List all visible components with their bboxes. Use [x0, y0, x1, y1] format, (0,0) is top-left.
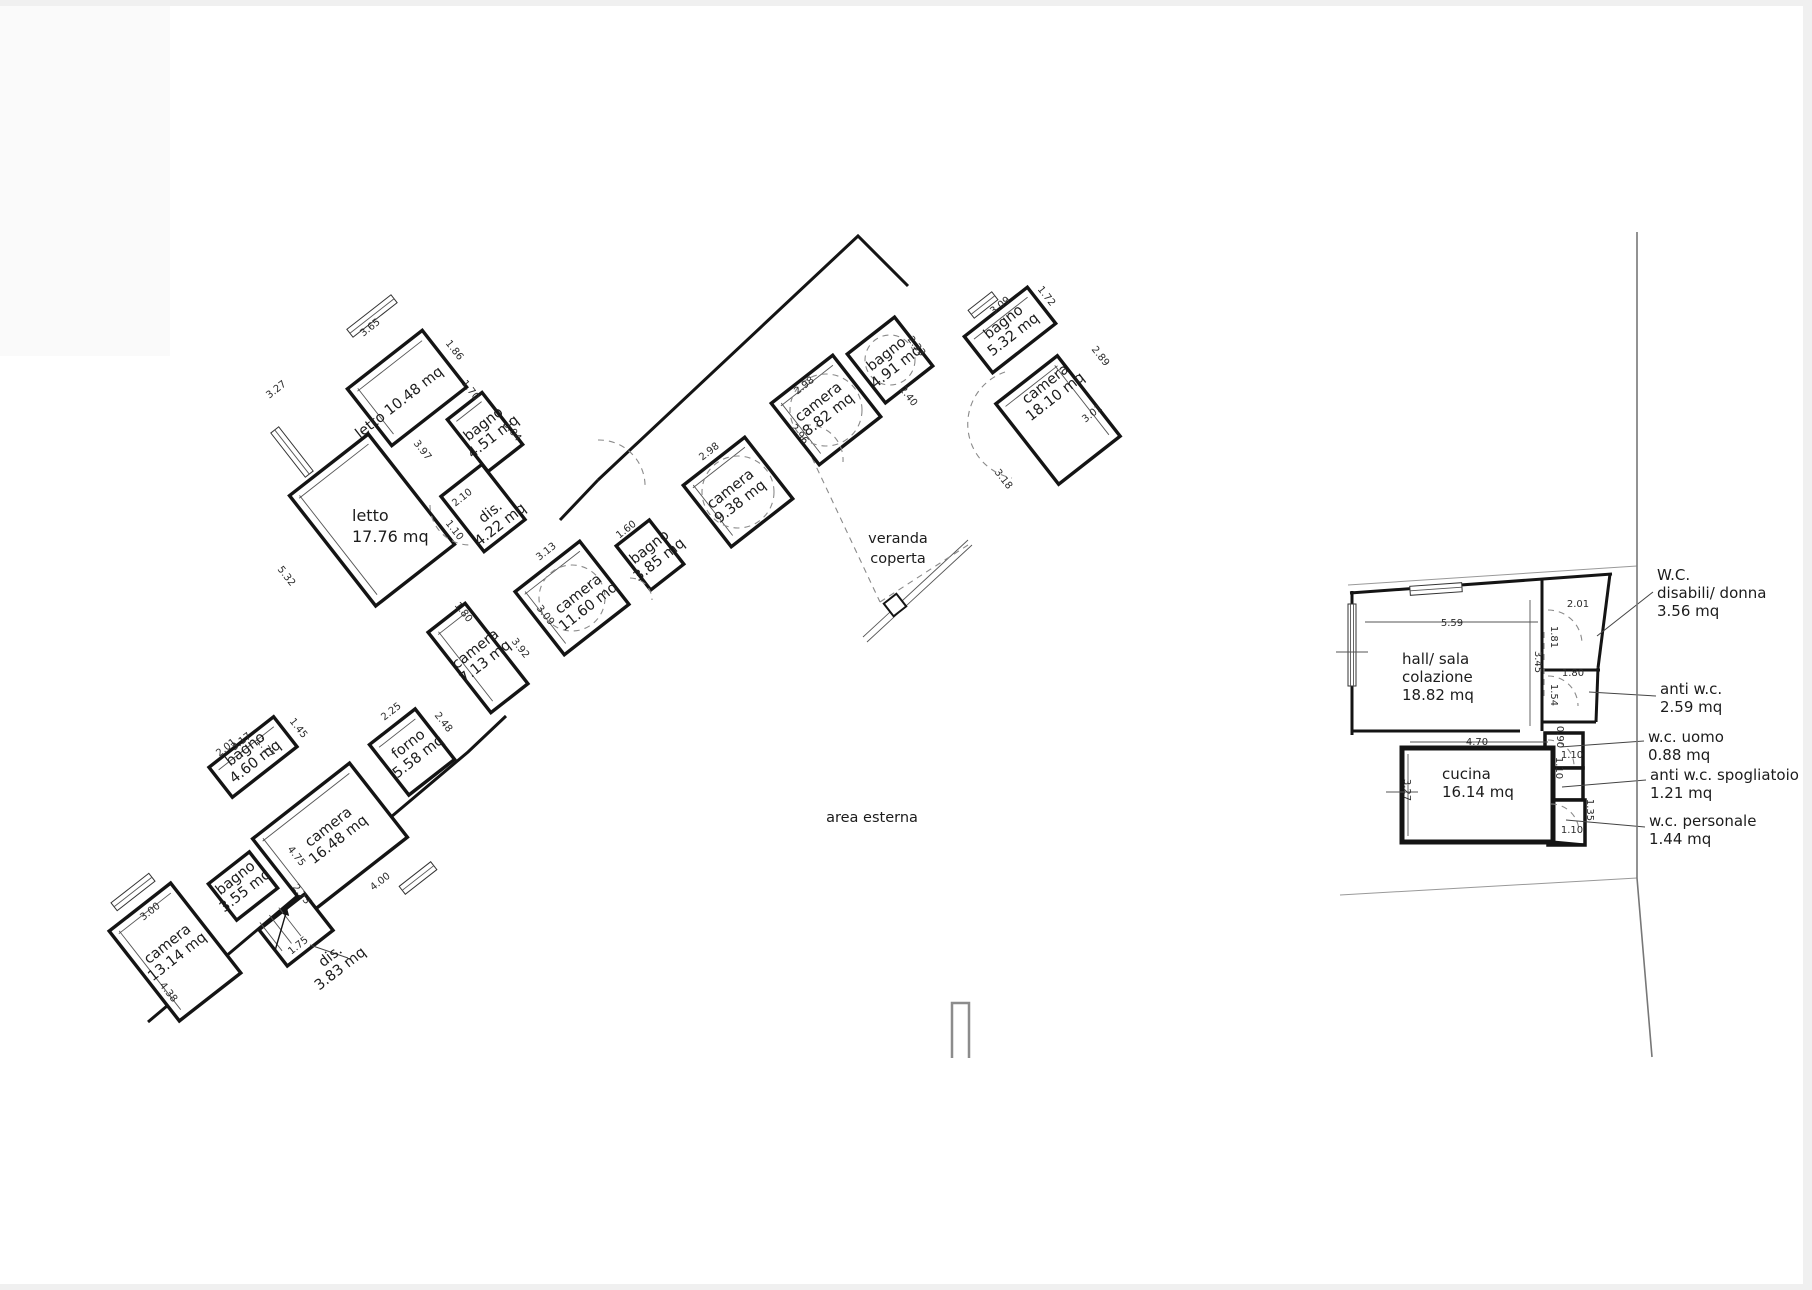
anno-anti-wc-spogliatoio-line2: 1.21 mq — [1650, 784, 1712, 802]
label-area-esterna: area esterna — [826, 810, 918, 826]
leader-anti-wc — [1589, 692, 1656, 696]
dim-40: 1.80 — [1562, 668, 1584, 679]
window-letto-1776 — [271, 427, 313, 477]
label-letto-1776: letto — [352, 506, 389, 525]
anno-wc-disabili-line3: 3.56 mq — [1657, 602, 1719, 620]
dim-46: 1.35 — [1584, 799, 1595, 821]
window-hall-top — [1410, 583, 1463, 596]
site-marker — [952, 1003, 969, 1058]
anno-wc-uomo-line2: 0.88 mq — [1648, 746, 1710, 764]
wall-anti-wc-right — [1596, 668, 1598, 722]
window-camera-1648 — [399, 862, 437, 895]
dim-48: 3.27 — [1401, 779, 1412, 801]
dim-4: 3.97 — [411, 438, 433, 462]
label-hall-line3: 18.82 mq — [1402, 686, 1474, 704]
page-edge-top — [0, 0, 1812, 6]
door-arc-camera-1810 — [968, 372, 1012, 478]
dim-32: 2.89 — [1089, 344, 1111, 368]
dim-29: 2.40 — [897, 384, 919, 408]
floor-plan-page: letto10.48 mq bagno4.51 mq dis.4.22 mq c… — [0, 0, 1812, 1290]
property-boundary-line — [1637, 232, 1652, 1057]
dim-43: 4.70 — [1466, 737, 1488, 748]
dim-0: 3.27 — [264, 379, 288, 401]
right-service-plan — [1336, 566, 1656, 895]
dim-14: 2.48 — [432, 710, 454, 734]
page-edge-right — [1803, 0, 1812, 1290]
veranda-pillar — [884, 594, 906, 616]
window-hall-left — [1348, 604, 1356, 686]
dim-42: 0.90 — [1554, 726, 1565, 748]
dim-1: 5.32 — [275, 564, 297, 588]
dim-37: 2.01 — [1567, 599, 1589, 610]
page-edge-bottom — [0, 1284, 1812, 1290]
label-cucina-line2: 16.14 mq — [1442, 783, 1514, 801]
anno-wc-personale-line1: w.c. personale — [1649, 812, 1756, 830]
label-hall-line1: hall/ sala — [1402, 650, 1469, 668]
door-arc-letto — [598, 440, 645, 488]
wall-top — [1350, 574, 1612, 593]
anno-wc-uomo-line1: w.c. uomo — [1648, 728, 1724, 746]
dim-36: 5.59 — [1441, 618, 1463, 629]
wall-wc-disabili-right — [1598, 574, 1610, 668]
wall-corridor-link — [560, 480, 598, 520]
label-hall-line2: colazione — [1402, 668, 1473, 686]
dim-47: 1.10 — [1561, 825, 1583, 836]
dim-34: 3.18 — [992, 467, 1014, 491]
anno-anti-wc-line2: 2.59 mq — [1660, 698, 1722, 716]
floor-plan-drawing: letto10.48 mq bagno4.51 mq dis.4.22 mq c… — [0, 0, 1812, 1290]
label-veranda-line2: coperta — [870, 551, 926, 567]
terrain-line-bottom — [1340, 878, 1637, 895]
anno-wc-disabili-line1: W.C. — [1657, 566, 1690, 584]
dim-38: 1.81 — [1548, 626, 1559, 648]
anno-anti-wc-line1: anti w.c. — [1660, 680, 1722, 698]
left-wing-plan — [109, 236, 1120, 1022]
anno-wc-disabili-line2: disabili/ donna — [1657, 584, 1766, 602]
label-veranda-line1: veranda — [868, 531, 928, 547]
label-cucina-line1: cucina — [1442, 765, 1491, 783]
dim-45: 1.10 — [1553, 757, 1564, 779]
label-letto-1776-area: 17.76 mq — [352, 527, 429, 546]
dim-39: 3.45 — [1532, 651, 1543, 673]
dim-41: 1.54 — [1548, 684, 1559, 706]
page-shading — [0, 6, 170, 356]
anno-wc-personale-line2: 1.44 mq — [1649, 830, 1711, 848]
anno-anti-wc-spogliatoio-line1: anti w.c. spogliatoio — [1650, 766, 1799, 784]
dim-24: 4.00 — [368, 871, 392, 893]
